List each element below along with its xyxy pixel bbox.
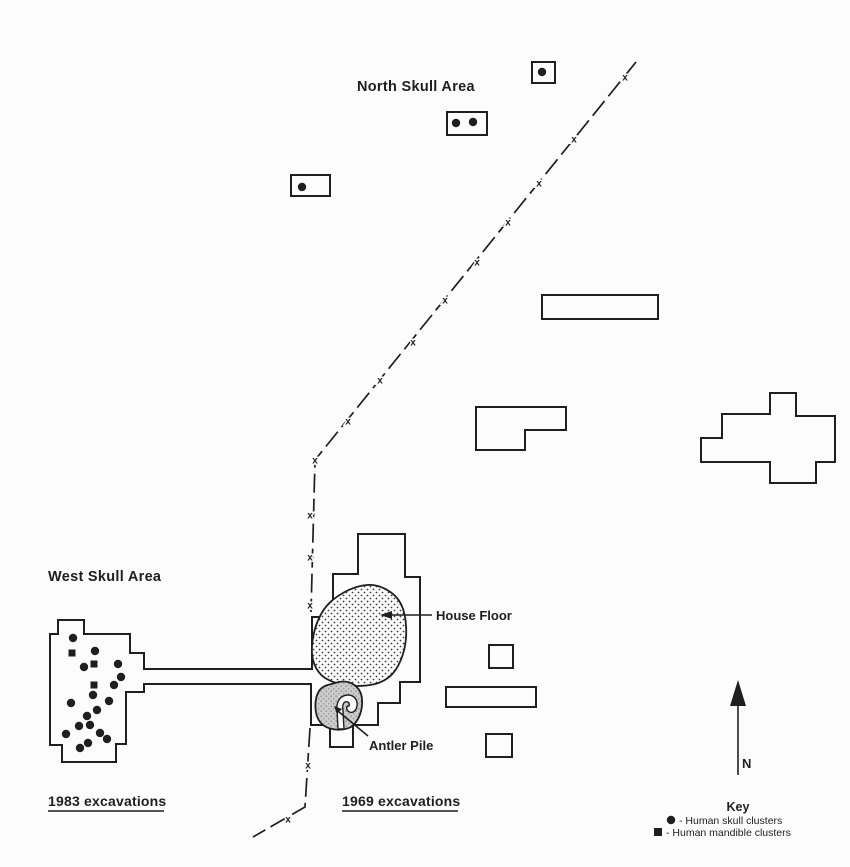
key-skull-entry: - Human skull clusters [679,815,782,827]
skull-cluster-marker [452,119,460,127]
skull-cluster-marker [86,721,94,729]
survey-station-mark: x [307,511,313,522]
skull-cluster-marker [62,730,70,738]
survey-station-mark: x [312,456,318,467]
skull-cluster-marker [91,647,99,655]
skull-cluster-marker [76,744,84,752]
survey-station-mark: x [536,179,542,190]
excavations-1983-label: 1983 excavations [48,793,166,809]
skull-cluster-marker [110,681,118,689]
site-map-page: xxxxxxxxxxxxxxx N North Skull Area West … [0,0,850,867]
skull-marker-icon [667,816,675,824]
key-title: Key [727,800,750,814]
skull-cluster-marker [80,663,88,671]
excavations-1969-label: 1969 excavations [342,793,460,809]
west-skull-area-label: West Skull Area [48,569,162,585]
site-map: xxxxxxxxxxxxxxx N North Skull Area West … [0,0,850,867]
survey-station-mark: x [377,376,383,387]
skull-cluster-marker [469,118,477,126]
skull-cluster-marker [298,183,306,191]
house-floor-label: House Floor [436,608,512,623]
survey-station-mark: x [285,815,291,826]
skull-cluster-marker [96,729,104,737]
skull-cluster-marker [67,699,75,707]
survey-station-mark: x [505,218,511,229]
skull-cluster-marker [103,735,111,743]
survey-station-mark: x [622,73,628,84]
north-skull-area-label: North Skull Area [357,79,476,95]
mandible-cluster-marker [91,682,98,689]
skull-cluster-marker [105,697,113,705]
survey-station-mark: x [305,761,311,772]
survey-station-mark: x [571,135,577,146]
mandible-cluster-marker [91,661,98,668]
skull-cluster-marker [83,712,91,720]
skull-cluster-marker [114,660,122,668]
survey-station-mark: x [474,258,480,269]
survey-station-mark: x [410,338,416,349]
mandible-cluster-marker [69,650,76,657]
antler-pile-label: Antler Pile [369,738,433,753]
key-mandible-entry: - Human mandible clusters [666,827,791,839]
mandible-marker-icon [654,828,662,836]
north-indicator-label: N [742,756,751,771]
skull-cluster-marker [117,673,125,681]
skull-cluster-marker [93,706,101,714]
survey-station-mark: x [307,553,313,564]
skull-cluster-marker [84,739,92,747]
survey-station-mark: x [442,296,448,307]
survey-station-mark: x [307,601,313,612]
survey-station-mark: x [345,417,351,428]
skull-cluster-marker [538,68,546,76]
skull-cluster-marker [89,691,97,699]
skull-cluster-marker [69,634,77,642]
skull-cluster-marker [75,722,83,730]
